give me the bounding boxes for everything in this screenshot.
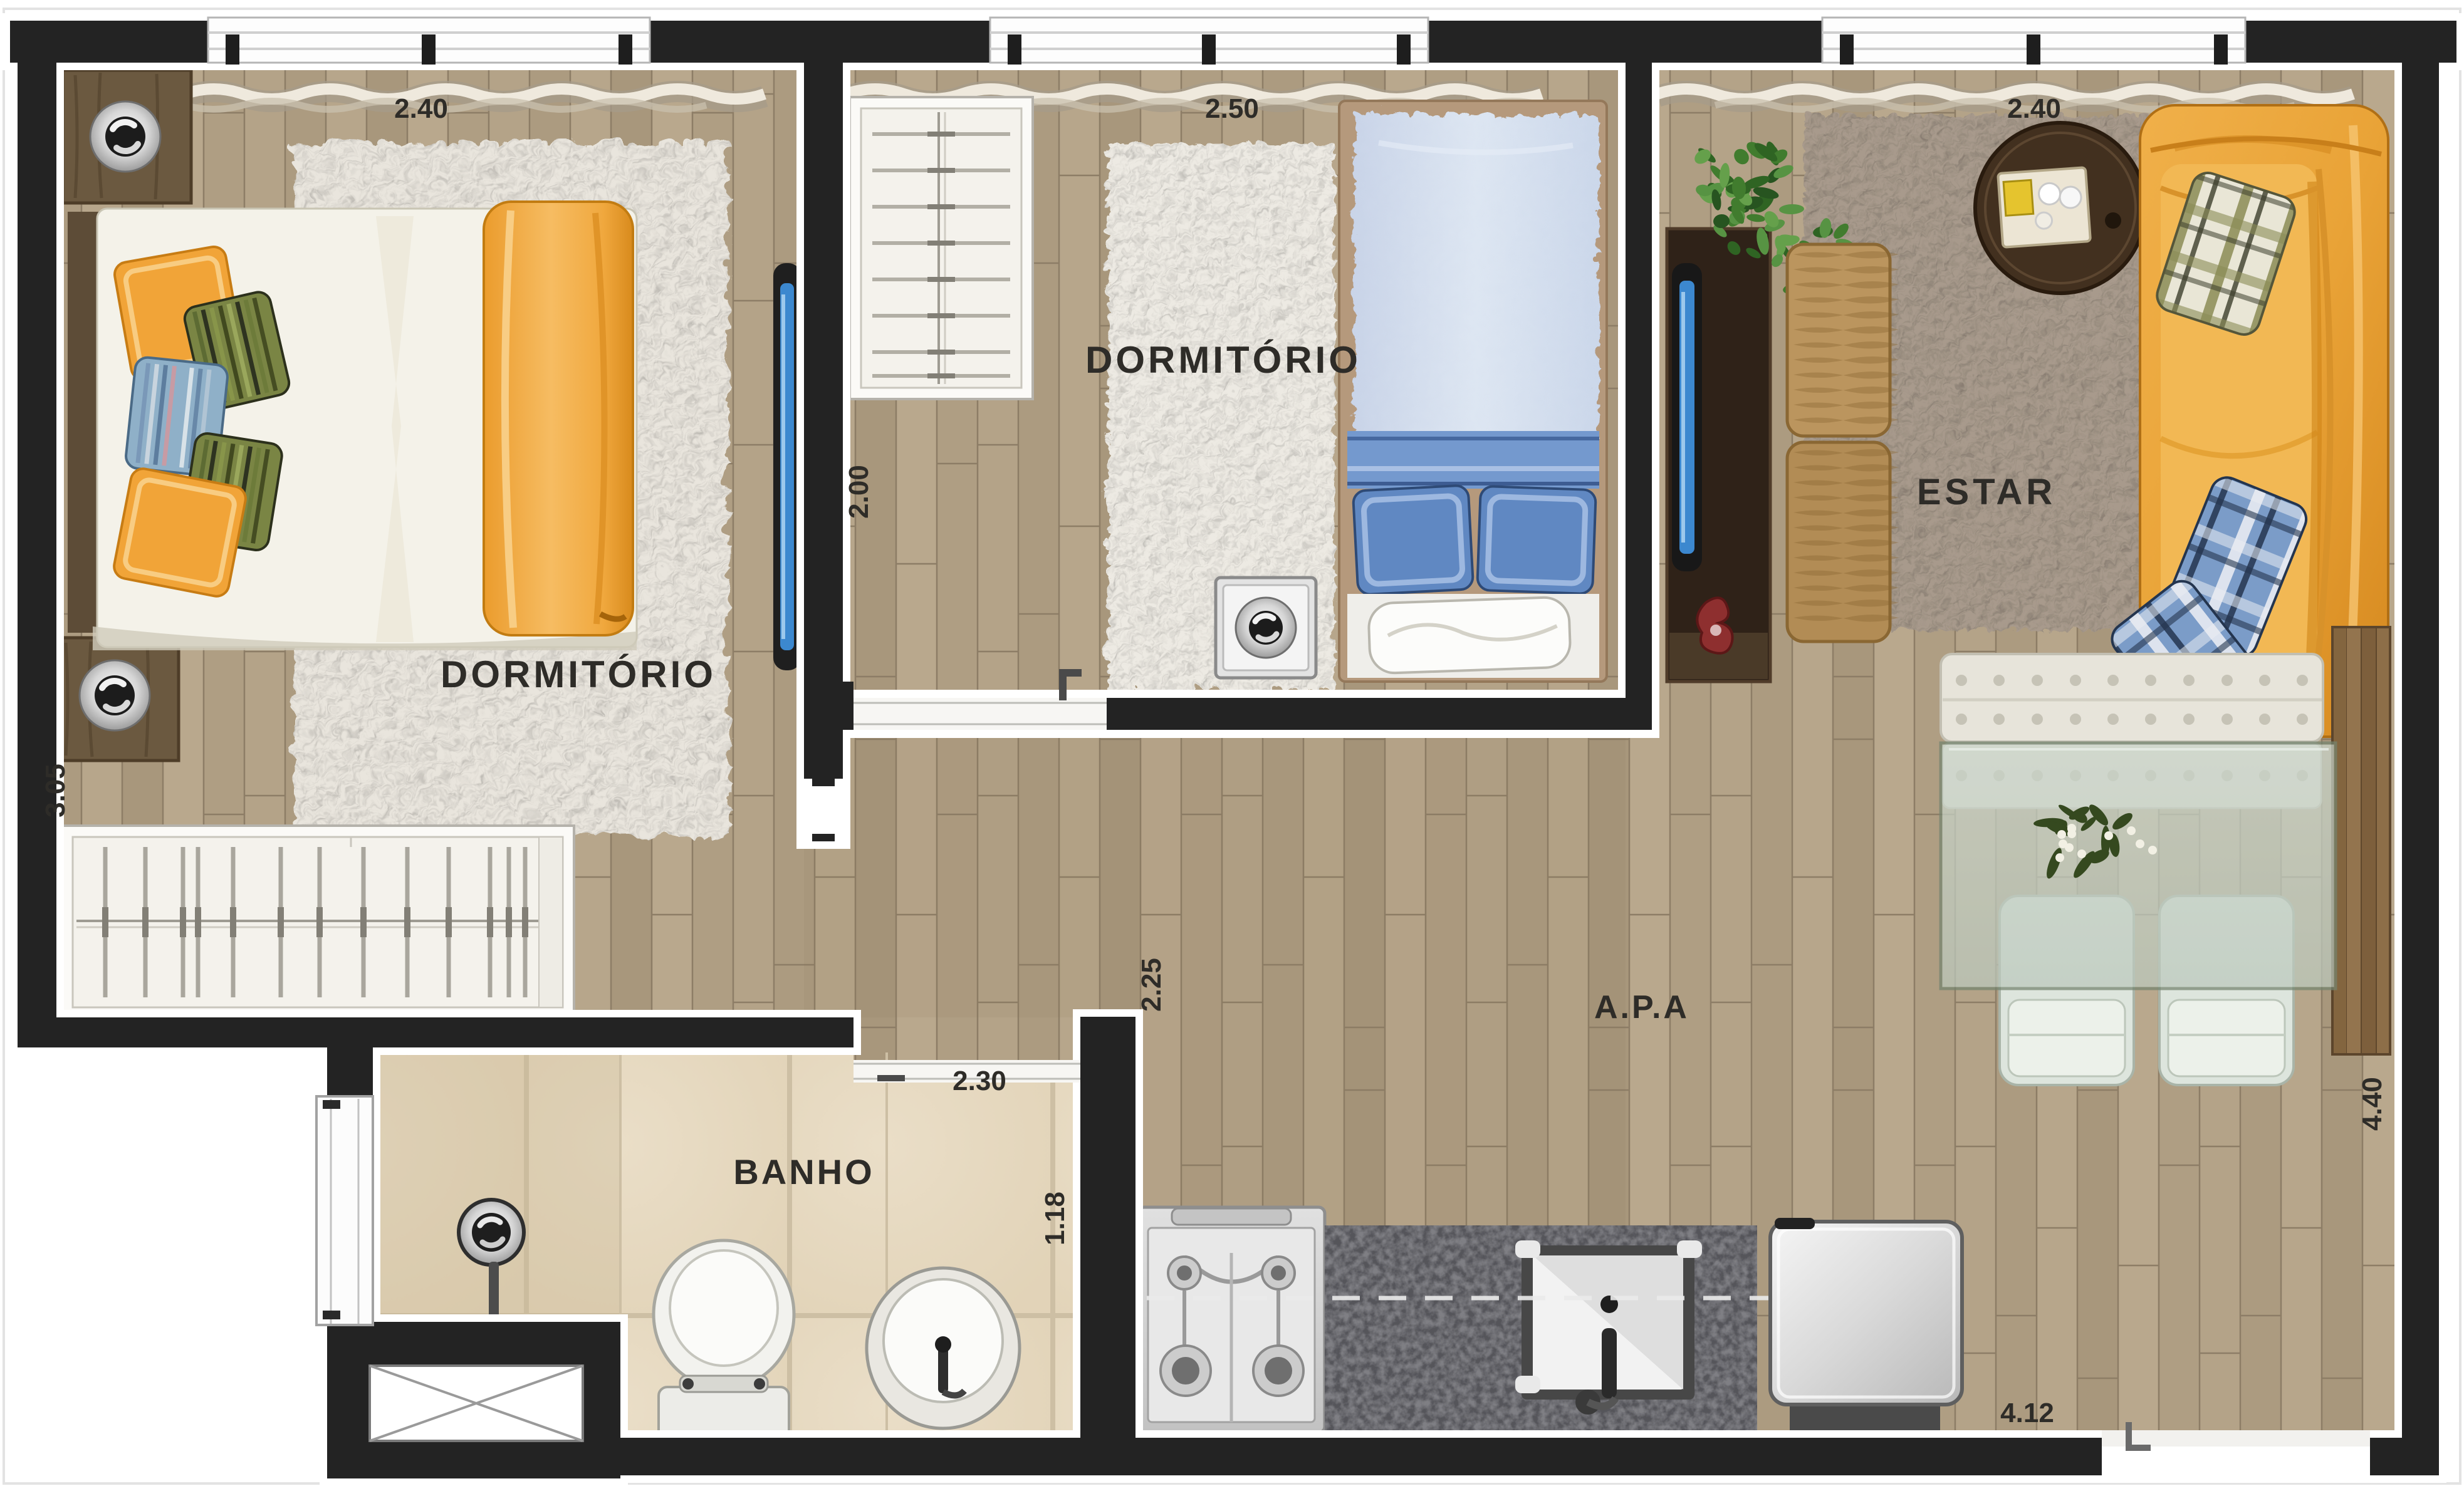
svg-text:DORMITÓRIO: DORMITÓRIO — [1085, 339, 1361, 381]
svg-text:2.00: 2.00 — [843, 465, 874, 519]
svg-text:2.25: 2.25 — [1136, 958, 1167, 1012]
svg-text:BANHO: BANHO — [733, 1152, 874, 1192]
svg-text:DORMITÓRIO: DORMITÓRIO — [441, 653, 716, 695]
svg-text:2.40: 2.40 — [394, 93, 448, 124]
svg-text:4.12: 4.12 — [2000, 1398, 2054, 1428]
svg-text:A.P.A: A.P.A — [1594, 989, 1689, 1026]
svg-text:2.50: 2.50 — [1205, 93, 1259, 124]
svg-text:2.40: 2.40 — [2007, 93, 2061, 124]
svg-text:ESTAR: ESTAR — [1917, 472, 2056, 512]
svg-text:2.30: 2.30 — [953, 1066, 1006, 1096]
svg-text:1.18: 1.18 — [1040, 1192, 1070, 1245]
svg-text:4.40: 4.40 — [2357, 1077, 2388, 1131]
svg-text:3.05: 3.05 — [40, 764, 71, 818]
